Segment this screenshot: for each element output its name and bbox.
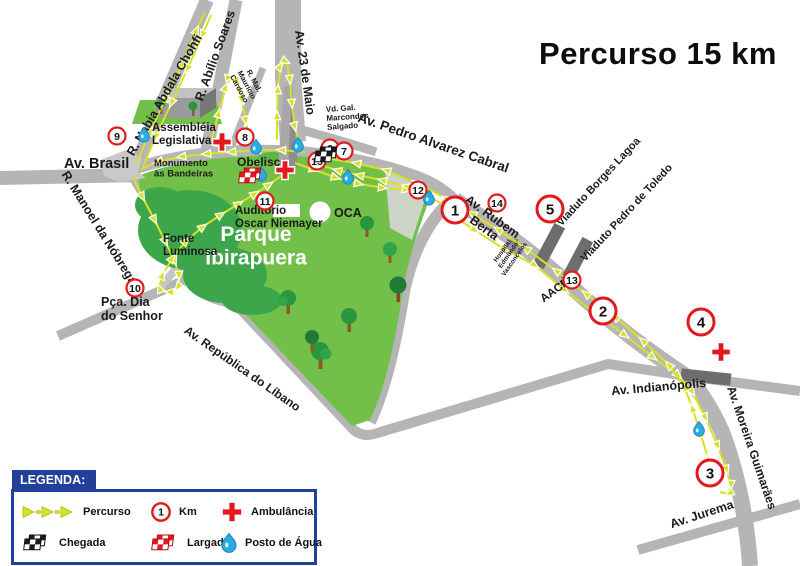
route-arrows bbox=[22, 505, 76, 519]
km-marker-2: 2 bbox=[590, 298, 616, 324]
svg-text:4: 4 bbox=[697, 314, 706, 331]
water-stop-icon bbox=[694, 421, 705, 436]
page-title: Percurso 15 km bbox=[528, 36, 788, 72]
svg-text:1: 1 bbox=[451, 202, 459, 219]
svg-text:3: 3 bbox=[706, 465, 714, 482]
label-assembleia-legislativa: AssembléiaLegislativa bbox=[152, 122, 217, 147]
svg-text:11: 11 bbox=[259, 196, 270, 208]
km-marker-13: 13 bbox=[564, 272, 581, 289]
km-marker-10: 10 bbox=[127, 280, 144, 297]
svg-text:14: 14 bbox=[491, 198, 503, 210]
legend-item-label: Percurso bbox=[83, 506, 131, 518]
label-oca: OCA bbox=[334, 206, 362, 220]
legend-item-start-flag: Largada bbox=[150, 534, 220, 552]
svg-text:8: 8 bbox=[242, 132, 248, 144]
map-canvas: R. Nabia Abdala ChohfiR. Abílio SoaresAv… bbox=[0, 0, 800, 566]
start-flag bbox=[150, 534, 180, 552]
km-marker-14: 14 bbox=[489, 195, 506, 212]
km-marker-12: 12 bbox=[410, 182, 427, 199]
legend-item-water-drop: Posto de Água bbox=[220, 531, 314, 555]
svg-text:1: 1 bbox=[158, 506, 164, 518]
km-marker-9: 9 bbox=[109, 128, 126, 145]
legend-item-ambulance-cross: Ambulância bbox=[220, 500, 314, 524]
km-marker-11: 11 bbox=[257, 193, 274, 210]
labels-layer: R. Nabia Abdala ChohfiR. Abílio SoaresAv… bbox=[59, 8, 780, 531]
svg-text:9: 9 bbox=[114, 131, 120, 143]
legend-item-route-arrows: Percurso bbox=[22, 505, 150, 519]
km-marker-1: 1 bbox=[442, 197, 468, 223]
legend-item-label: Km bbox=[179, 506, 197, 518]
label-monumento-as-bandeiras: Monumentoàs Bandeiras bbox=[154, 158, 213, 180]
km-circle: 1 bbox=[150, 501, 172, 523]
label-viaduto-pedro-de-toledo: Viaduto Pedro de Toledo bbox=[579, 162, 676, 264]
course-map-page: R. Nabia Abdala ChohfiR. Abílio SoaresAv… bbox=[0, 0, 800, 566]
water-drop bbox=[220, 531, 238, 555]
legend-item-km-circle: 1Km bbox=[150, 501, 220, 523]
km-marker-4: 4 bbox=[688, 309, 714, 335]
km-marker-8: 8 bbox=[237, 129, 254, 146]
svg-text:13: 13 bbox=[566, 275, 578, 287]
ambulance-icon bbox=[712, 343, 731, 362]
svg-text:5: 5 bbox=[546, 201, 554, 218]
label-av-brasil: Av. Brasil bbox=[64, 156, 129, 172]
km-marker-3: 3 bbox=[697, 460, 723, 486]
legend-item-label: Chegada bbox=[59, 537, 105, 549]
finish-flag bbox=[22, 534, 52, 552]
km-marker-7: 7 bbox=[336, 143, 353, 160]
legend-item-label: Ambulância bbox=[251, 506, 313, 518]
ambulance-cross bbox=[220, 500, 244, 524]
svg-text:2: 2 bbox=[599, 303, 607, 320]
svg-text:7: 7 bbox=[341, 146, 347, 158]
legend-box: Percurso 1KmAmbulânciaChegadaLargada Pos… bbox=[11, 489, 317, 565]
svg-text:10: 10 bbox=[129, 283, 141, 295]
legend-header: LEGENDA: bbox=[12, 470, 96, 490]
legend-item-finish-flag: Chegada bbox=[22, 534, 150, 552]
viaducts-layer bbox=[533, 223, 732, 386]
km-marker-5: 5 bbox=[537, 196, 563, 222]
legend-item-label: Posto de Água bbox=[245, 537, 322, 549]
label-r-manoel-da-nobrega: R. Manoel da Nóbrega bbox=[59, 169, 141, 289]
svg-text:12: 12 bbox=[412, 185, 424, 197]
